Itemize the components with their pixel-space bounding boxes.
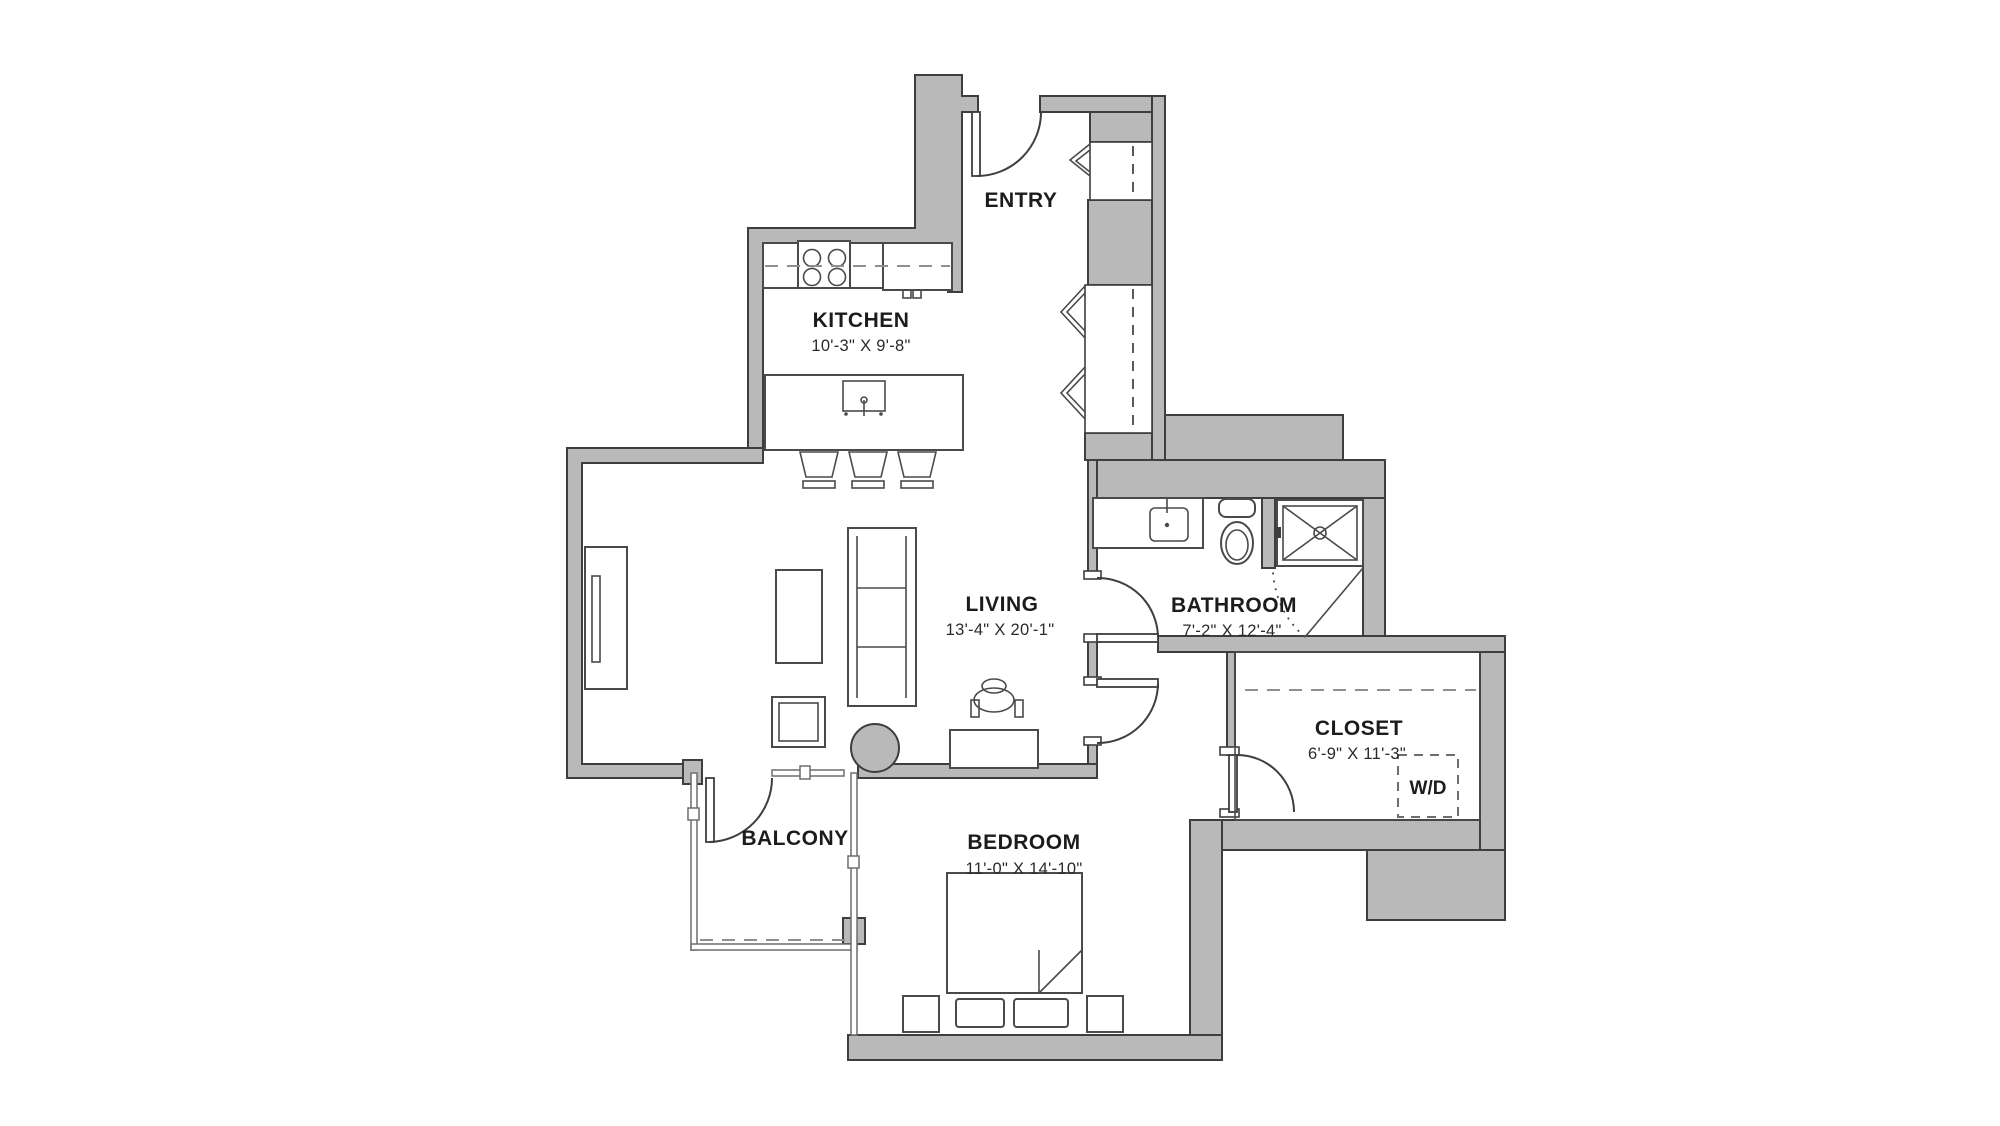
wall-segment xyxy=(1262,498,1275,568)
toilet-tank xyxy=(1219,499,1255,517)
sink-detail xyxy=(844,412,848,416)
bar-stools xyxy=(800,452,936,488)
bathroom-door-swing-arc xyxy=(1097,578,1158,638)
desk-and-chair xyxy=(950,679,1038,768)
window-mullion xyxy=(688,808,699,820)
kitchen-group xyxy=(763,241,963,488)
floor-plan-page: ENTRY KITCHEN 10'-3" X 9'-8" LIVING 13'-… xyxy=(0,0,2000,1126)
kitchen-dims: 10'-3" X 9'-8" xyxy=(811,337,910,355)
refrigerator-handle xyxy=(903,290,911,298)
entry-label: ENTRY xyxy=(985,189,1058,212)
balcony-rail-bedroom-window xyxy=(851,773,857,1035)
wall-segment xyxy=(1040,96,1152,112)
desk-chair-arm xyxy=(1015,700,1023,717)
bar-stool-base xyxy=(901,481,933,488)
wall-segment xyxy=(1090,112,1152,142)
entry-door-swing-arc xyxy=(977,112,1041,176)
wall-segment xyxy=(1088,200,1152,285)
desk-chair-back xyxy=(974,688,1014,712)
coffee-table xyxy=(776,570,822,663)
refrigerator-handle xyxy=(913,290,921,298)
bar-stool-base xyxy=(803,481,835,488)
wall-segment xyxy=(1222,820,1505,850)
sofa xyxy=(848,528,916,706)
armchair-outline xyxy=(772,697,825,747)
bathroom-label: BATHROOM xyxy=(1171,594,1297,617)
bedroom-dims: 11'-0" X 14'-10" xyxy=(966,860,1083,878)
hall-door-leaf xyxy=(1097,679,1158,687)
bifold-door-icon xyxy=(1067,293,1085,331)
pillow xyxy=(956,999,1004,1027)
balcony-label: BALCONY xyxy=(741,827,848,850)
bifold-door-icon xyxy=(1061,286,1085,338)
bathroom-door-leaf xyxy=(1097,634,1158,642)
wall-segment xyxy=(1085,433,1152,460)
window-mullion xyxy=(800,766,810,779)
window-mullion xyxy=(848,856,859,868)
entry-closet-recess xyxy=(1090,142,1152,200)
kitchen-label: KITCHEN xyxy=(813,309,910,332)
bed xyxy=(947,873,1082,993)
balcony-door-leaf xyxy=(706,778,714,842)
bathroom-dims: 7'-2" X 12'-4" xyxy=(1182,622,1281,640)
wall-segment xyxy=(1152,96,1165,460)
bar-stool-base xyxy=(852,481,884,488)
wall-segment xyxy=(1480,652,1505,850)
bifold-door-icon xyxy=(1067,374,1085,412)
bedroom-group xyxy=(903,873,1123,1032)
toilet xyxy=(1219,499,1255,564)
bifold-door-icon xyxy=(1061,367,1085,419)
closet-door-leaf xyxy=(1229,755,1237,812)
closet-label: CLOSET xyxy=(1315,717,1403,740)
armchair xyxy=(772,697,825,747)
wall-segment xyxy=(848,1035,1222,1060)
nightstand xyxy=(903,996,939,1032)
nightstand xyxy=(1087,996,1123,1032)
living-label: LIVING xyxy=(965,593,1038,616)
wall-segment xyxy=(1165,415,1343,460)
bar-stool xyxy=(849,452,887,477)
wall-segment xyxy=(1363,498,1385,652)
washer-dryer-label: W/D xyxy=(1410,778,1447,799)
living-dims: 13'-4" X 20'-1" xyxy=(946,621,1055,639)
floor-plan-canvas: ENTRY KITCHEN 10'-3" X 9'-8" LIVING 13'-… xyxy=(0,0,2000,1126)
hall-door-swing-arc xyxy=(1097,683,1158,743)
door-jamb xyxy=(1220,747,1239,755)
desk xyxy=(950,730,1038,768)
wall-segment xyxy=(1190,820,1222,1060)
wall-segment xyxy=(1227,652,1235,755)
entry-closets-group xyxy=(1061,142,1152,433)
entry-door-leaf xyxy=(972,112,980,176)
round-side-table xyxy=(851,724,899,772)
wall-segment xyxy=(1090,460,1385,498)
vanity-drain xyxy=(1165,523,1169,527)
sink-detail xyxy=(879,412,883,416)
wall-segment xyxy=(1367,850,1505,920)
bedroom-label: BEDROOM xyxy=(967,831,1080,854)
bar-stool xyxy=(898,452,936,477)
desk-chair-head xyxy=(982,679,1006,693)
living-group xyxy=(585,528,1038,772)
bifold-door-icon xyxy=(1070,144,1090,176)
balcony-rail xyxy=(691,944,857,950)
bar-stool xyxy=(800,452,838,477)
shower-door xyxy=(1305,568,1363,637)
wall-segment xyxy=(1088,641,1097,682)
balcony-rail xyxy=(691,773,697,950)
entry-closet-recess xyxy=(1085,285,1152,433)
pillow xyxy=(1014,999,1068,1027)
shower-head-icon xyxy=(1274,527,1281,538)
closet-door-swing-arc xyxy=(1237,755,1294,812)
closet-dims: 6'-9" X 11'-3" xyxy=(1308,745,1406,763)
